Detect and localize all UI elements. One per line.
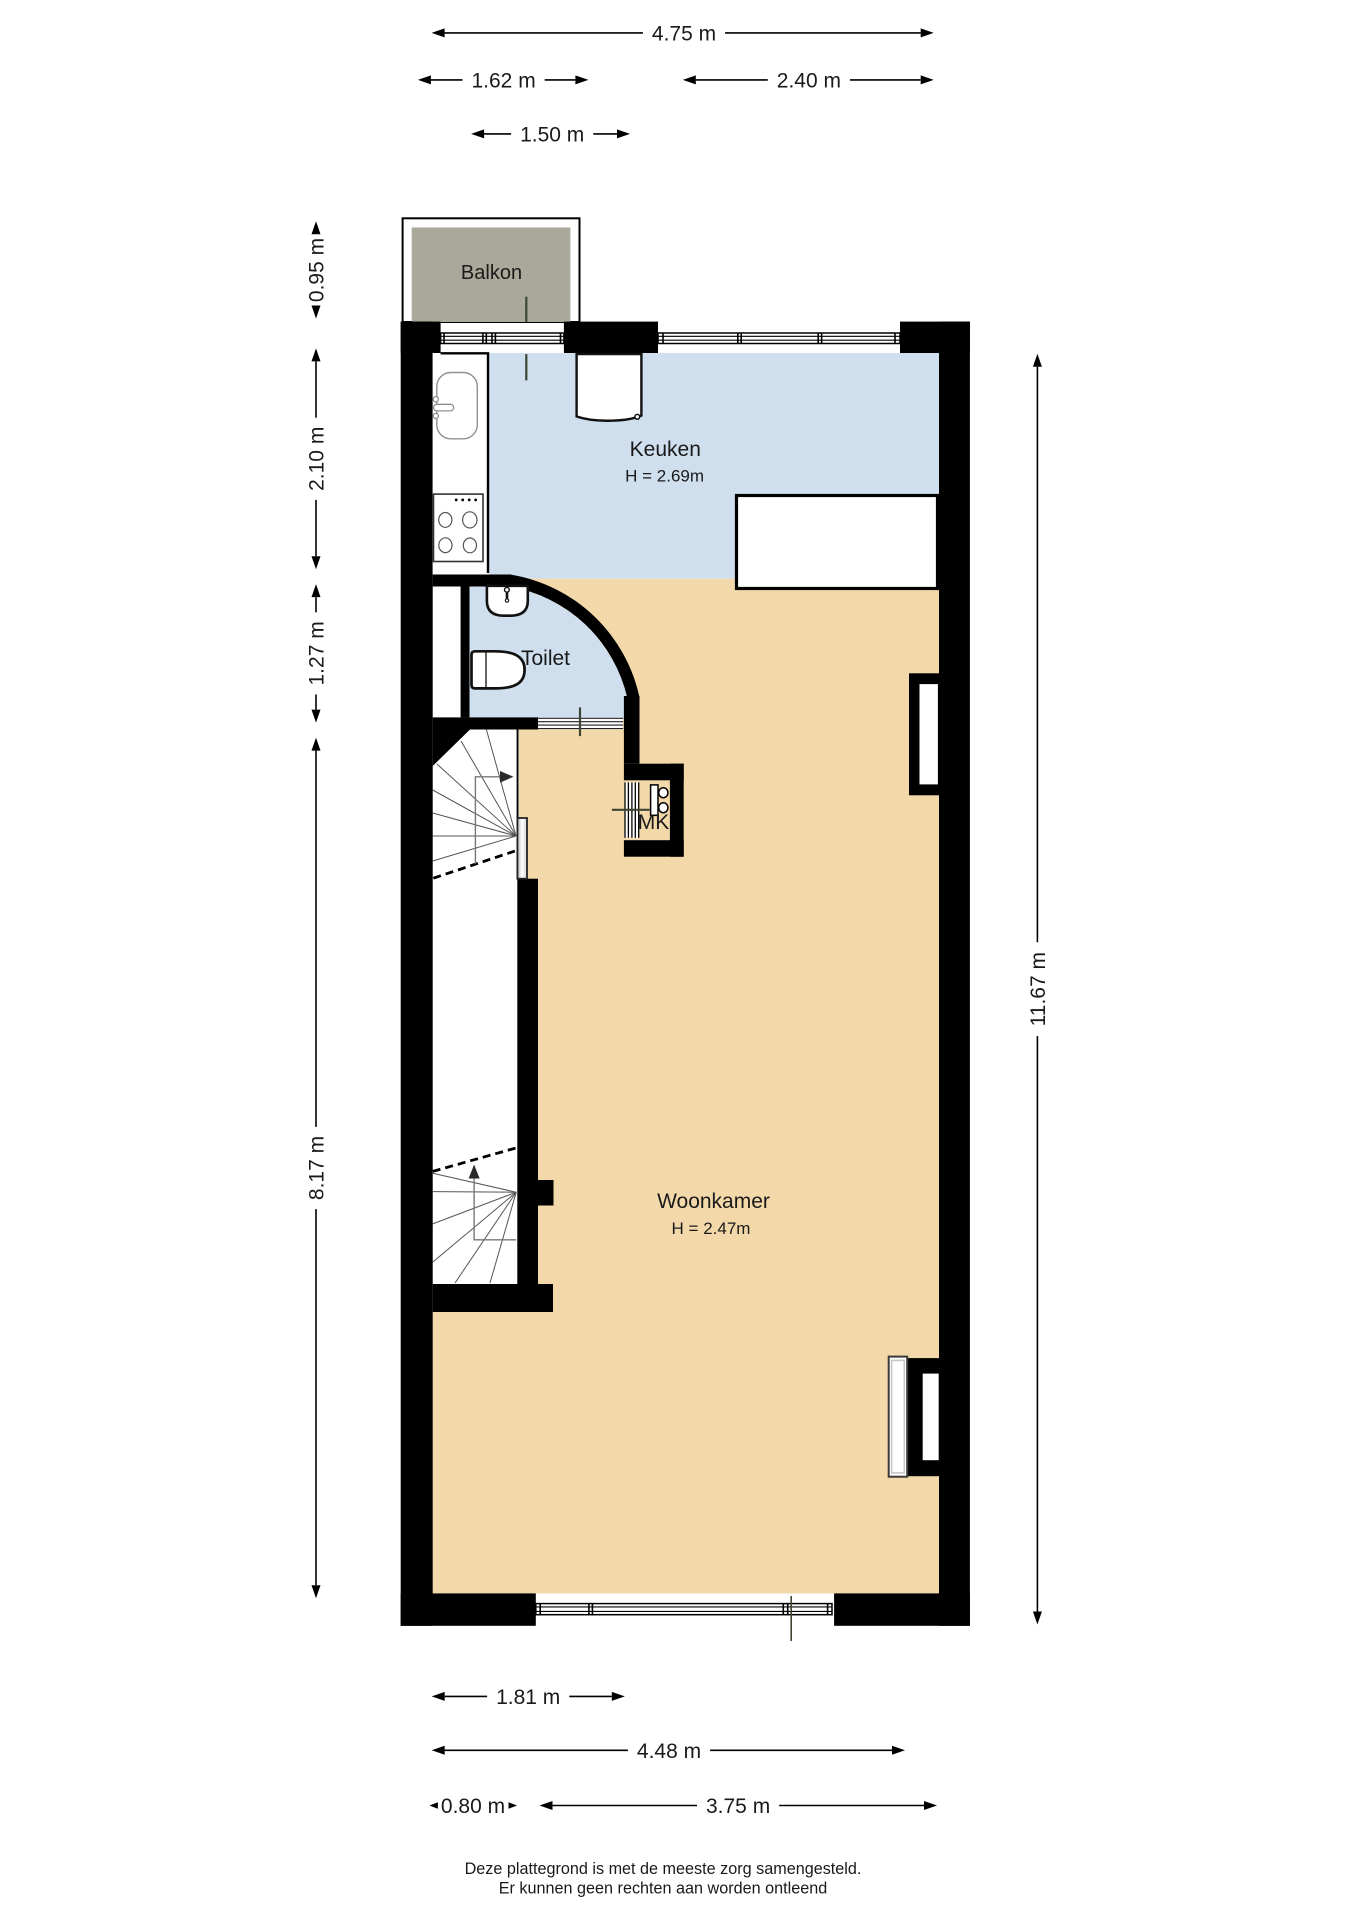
svg-text:1.81 m: 1.81 m: [496, 1686, 560, 1709]
svg-text:Keuken: Keuken: [630, 438, 701, 461]
svg-text:11.67 m: 11.67 m: [1027, 952, 1050, 1026]
svg-text:8.17 m: 8.17 m: [306, 1136, 329, 1200]
svg-text:4.48 m: 4.48 m: [637, 1740, 701, 1763]
svg-text:2.40 m: 2.40 m: [777, 70, 841, 93]
svg-text:4.75 m: 4.75 m: [652, 23, 716, 46]
svg-text:Woonkamer: Woonkamer: [657, 1190, 770, 1213]
svg-text:1.50 m: 1.50 m: [520, 124, 584, 147]
svg-text:H = 2.69m: H = 2.69m: [625, 467, 704, 486]
svg-text:1.62 m: 1.62 m: [471, 70, 535, 93]
svg-text:0.80 m: 0.80 m: [441, 1795, 505, 1818]
svg-text:MK: MK: [638, 811, 670, 834]
svg-text:Balkon: Balkon: [461, 262, 522, 284]
svg-text:1.27 m: 1.27 m: [306, 621, 329, 685]
svg-text:3.75 m: 3.75 m: [706, 1795, 770, 1818]
svg-text:Er kunnen geen rechten aan wor: Er kunnen geen rechten aan worden ontlee…: [499, 1880, 828, 1898]
svg-text:0.95 m: 0.95 m: [306, 238, 329, 302]
svg-text:Toilet: Toilet: [521, 647, 570, 670]
svg-text:Deze plattegrond is met de mee: Deze plattegrond is met de meeste zorg s…: [465, 1860, 862, 1878]
svg-text:2.10 m: 2.10 m: [306, 427, 329, 491]
svg-text:H = 2.47m: H = 2.47m: [672, 1219, 751, 1238]
